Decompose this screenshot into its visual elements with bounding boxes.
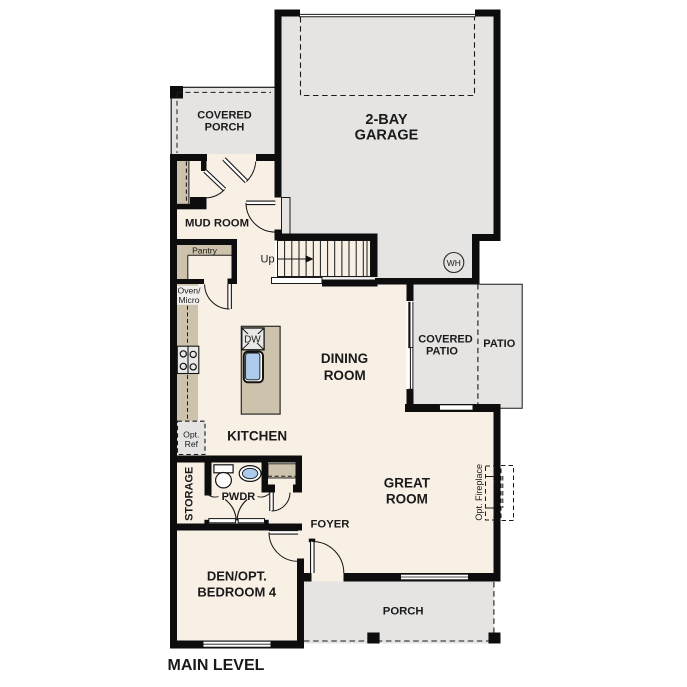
svg-text:GREAT: GREAT (384, 475, 431, 490)
svg-text:PORCH: PORCH (205, 122, 245, 134)
svg-text:PORCH: PORCH (383, 606, 424, 618)
svg-text:Up: Up (261, 254, 275, 266)
svg-text:MUD ROOM: MUD ROOM (185, 217, 249, 229)
svg-text:PATIO: PATIO (426, 346, 458, 358)
svg-text:MAIN LEVEL: MAIN LEVEL (168, 657, 265, 674)
svg-text:PATIO: PATIO (483, 338, 515, 350)
svg-text:FOYER: FOYER (311, 518, 350, 530)
svg-text:Ref: Ref (185, 439, 199, 449)
svg-text:DINING: DINING (321, 351, 368, 366)
svg-text:BEDROOM 4: BEDROOM 4 (197, 585, 277, 600)
svg-text:ROOM: ROOM (324, 368, 366, 383)
svg-text:Micro: Micro (178, 295, 199, 305)
svg-text:DEN/OPT.: DEN/OPT. (207, 569, 267, 584)
svg-text:WH: WH (447, 258, 461, 268)
svg-text:STORAGE: STORAGE (183, 467, 195, 521)
svg-text:ROOM: ROOM (386, 492, 428, 507)
svg-text:Pantry: Pantry (192, 245, 218, 255)
svg-text:2-BAY: 2-BAY (365, 112, 408, 128)
svg-text:GARAGE: GARAGE (355, 127, 419, 143)
svg-text:PWDR: PWDR (222, 491, 256, 503)
svg-text:DW: DW (244, 334, 261, 345)
svg-text:KITCHEN: KITCHEN (227, 428, 287, 443)
svg-text:COVERED: COVERED (197, 110, 251, 122)
svg-text:COVERED: COVERED (418, 334, 472, 346)
svg-text:Opt. Fireplace: Opt. Fireplace (474, 464, 484, 521)
